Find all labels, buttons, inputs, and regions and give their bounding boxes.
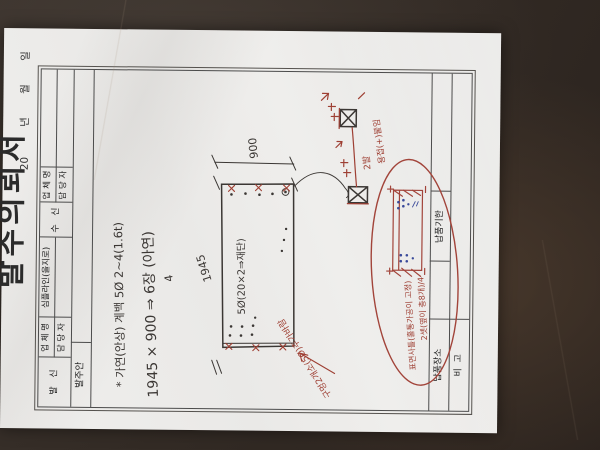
note-material: * 가연(안상) 계백 5Ø 2~4(1.6t) bbox=[110, 222, 129, 387]
dim-width-label: 900 bbox=[246, 137, 261, 159]
channel-blue-notes bbox=[412, 201, 418, 207]
channel-sketch bbox=[387, 186, 426, 276]
red-weld-count: 2발 bbox=[359, 155, 373, 170]
panel-sketch bbox=[210, 155, 349, 375]
photo-of-order-form: 발주의뢰서 20 년 월 일 발 신 업 체 명 담 당 자 bbox=[0, 0, 600, 450]
panel-note: 5Ø(20×2⇒재단) bbox=[232, 238, 248, 314]
paper-sheet: 발주의뢰서 20 년 월 일 발 신 업 체 명 담 당 자 bbox=[0, 28, 501, 433]
hand-sketch-layer bbox=[0, 28, 501, 433]
